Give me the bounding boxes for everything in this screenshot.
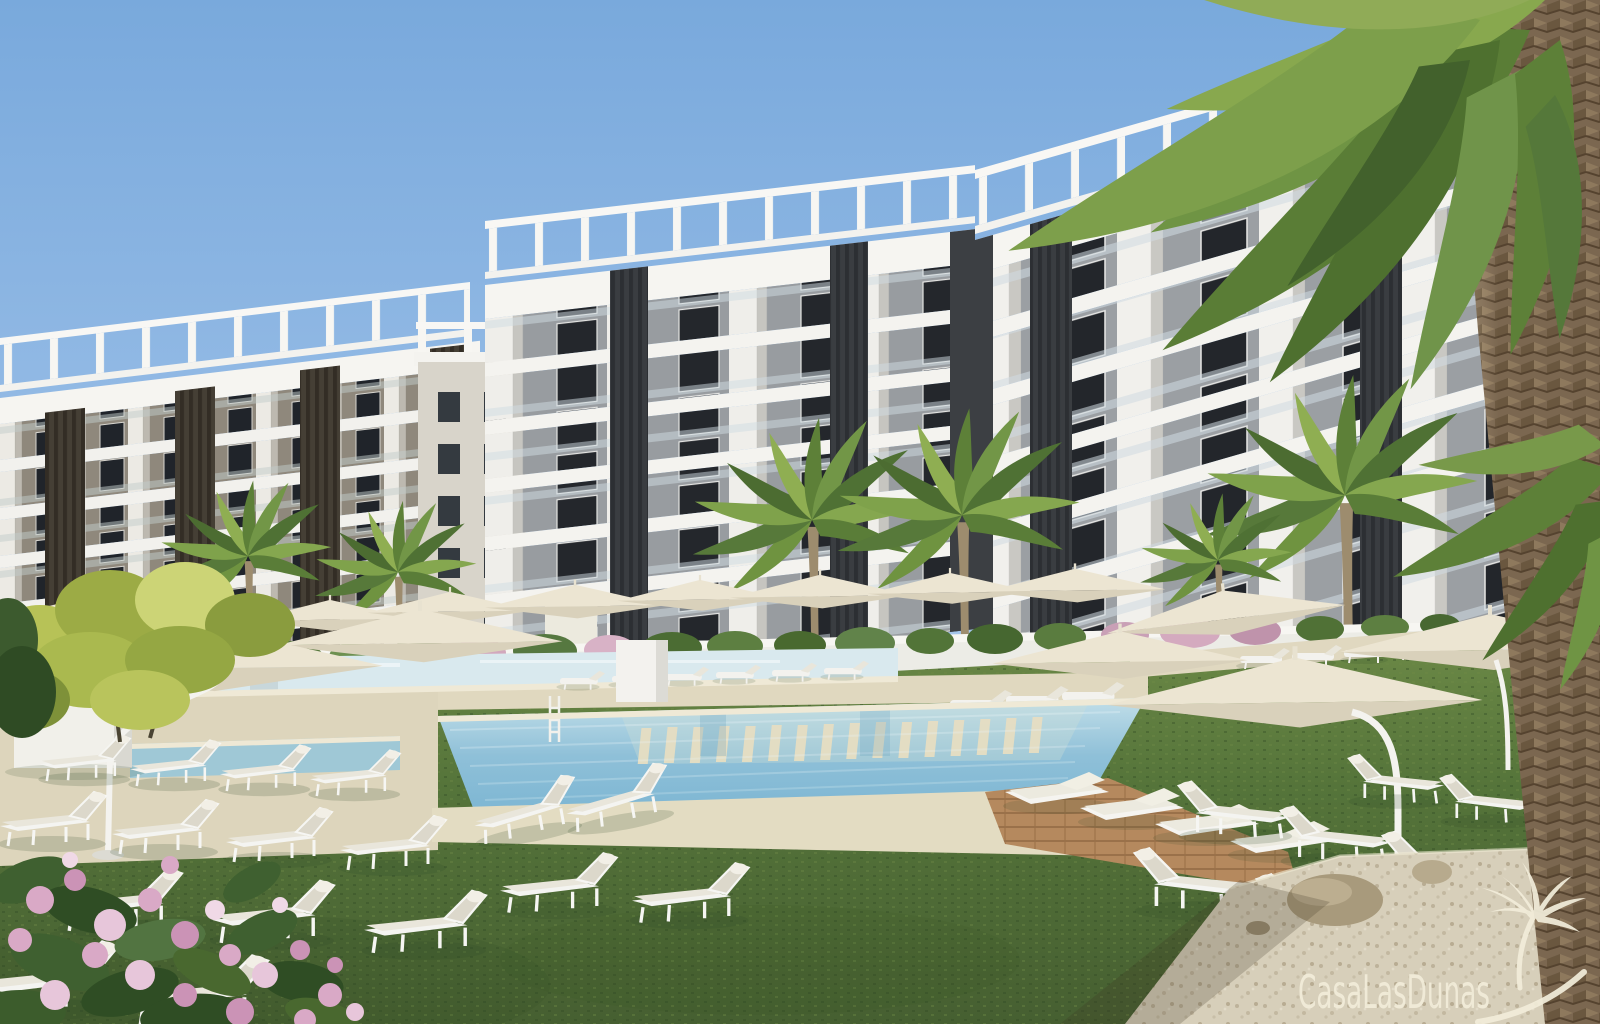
scene-render: CasaLasDunas [0, 0, 1600, 1024]
watermark-text: CasaLasDunas [1298, 965, 1490, 1019]
rock [1412, 860, 1452, 884]
pool-kiosk [616, 640, 668, 702]
render-canvas: CasaLasDunas [0, 0, 1600, 1024]
